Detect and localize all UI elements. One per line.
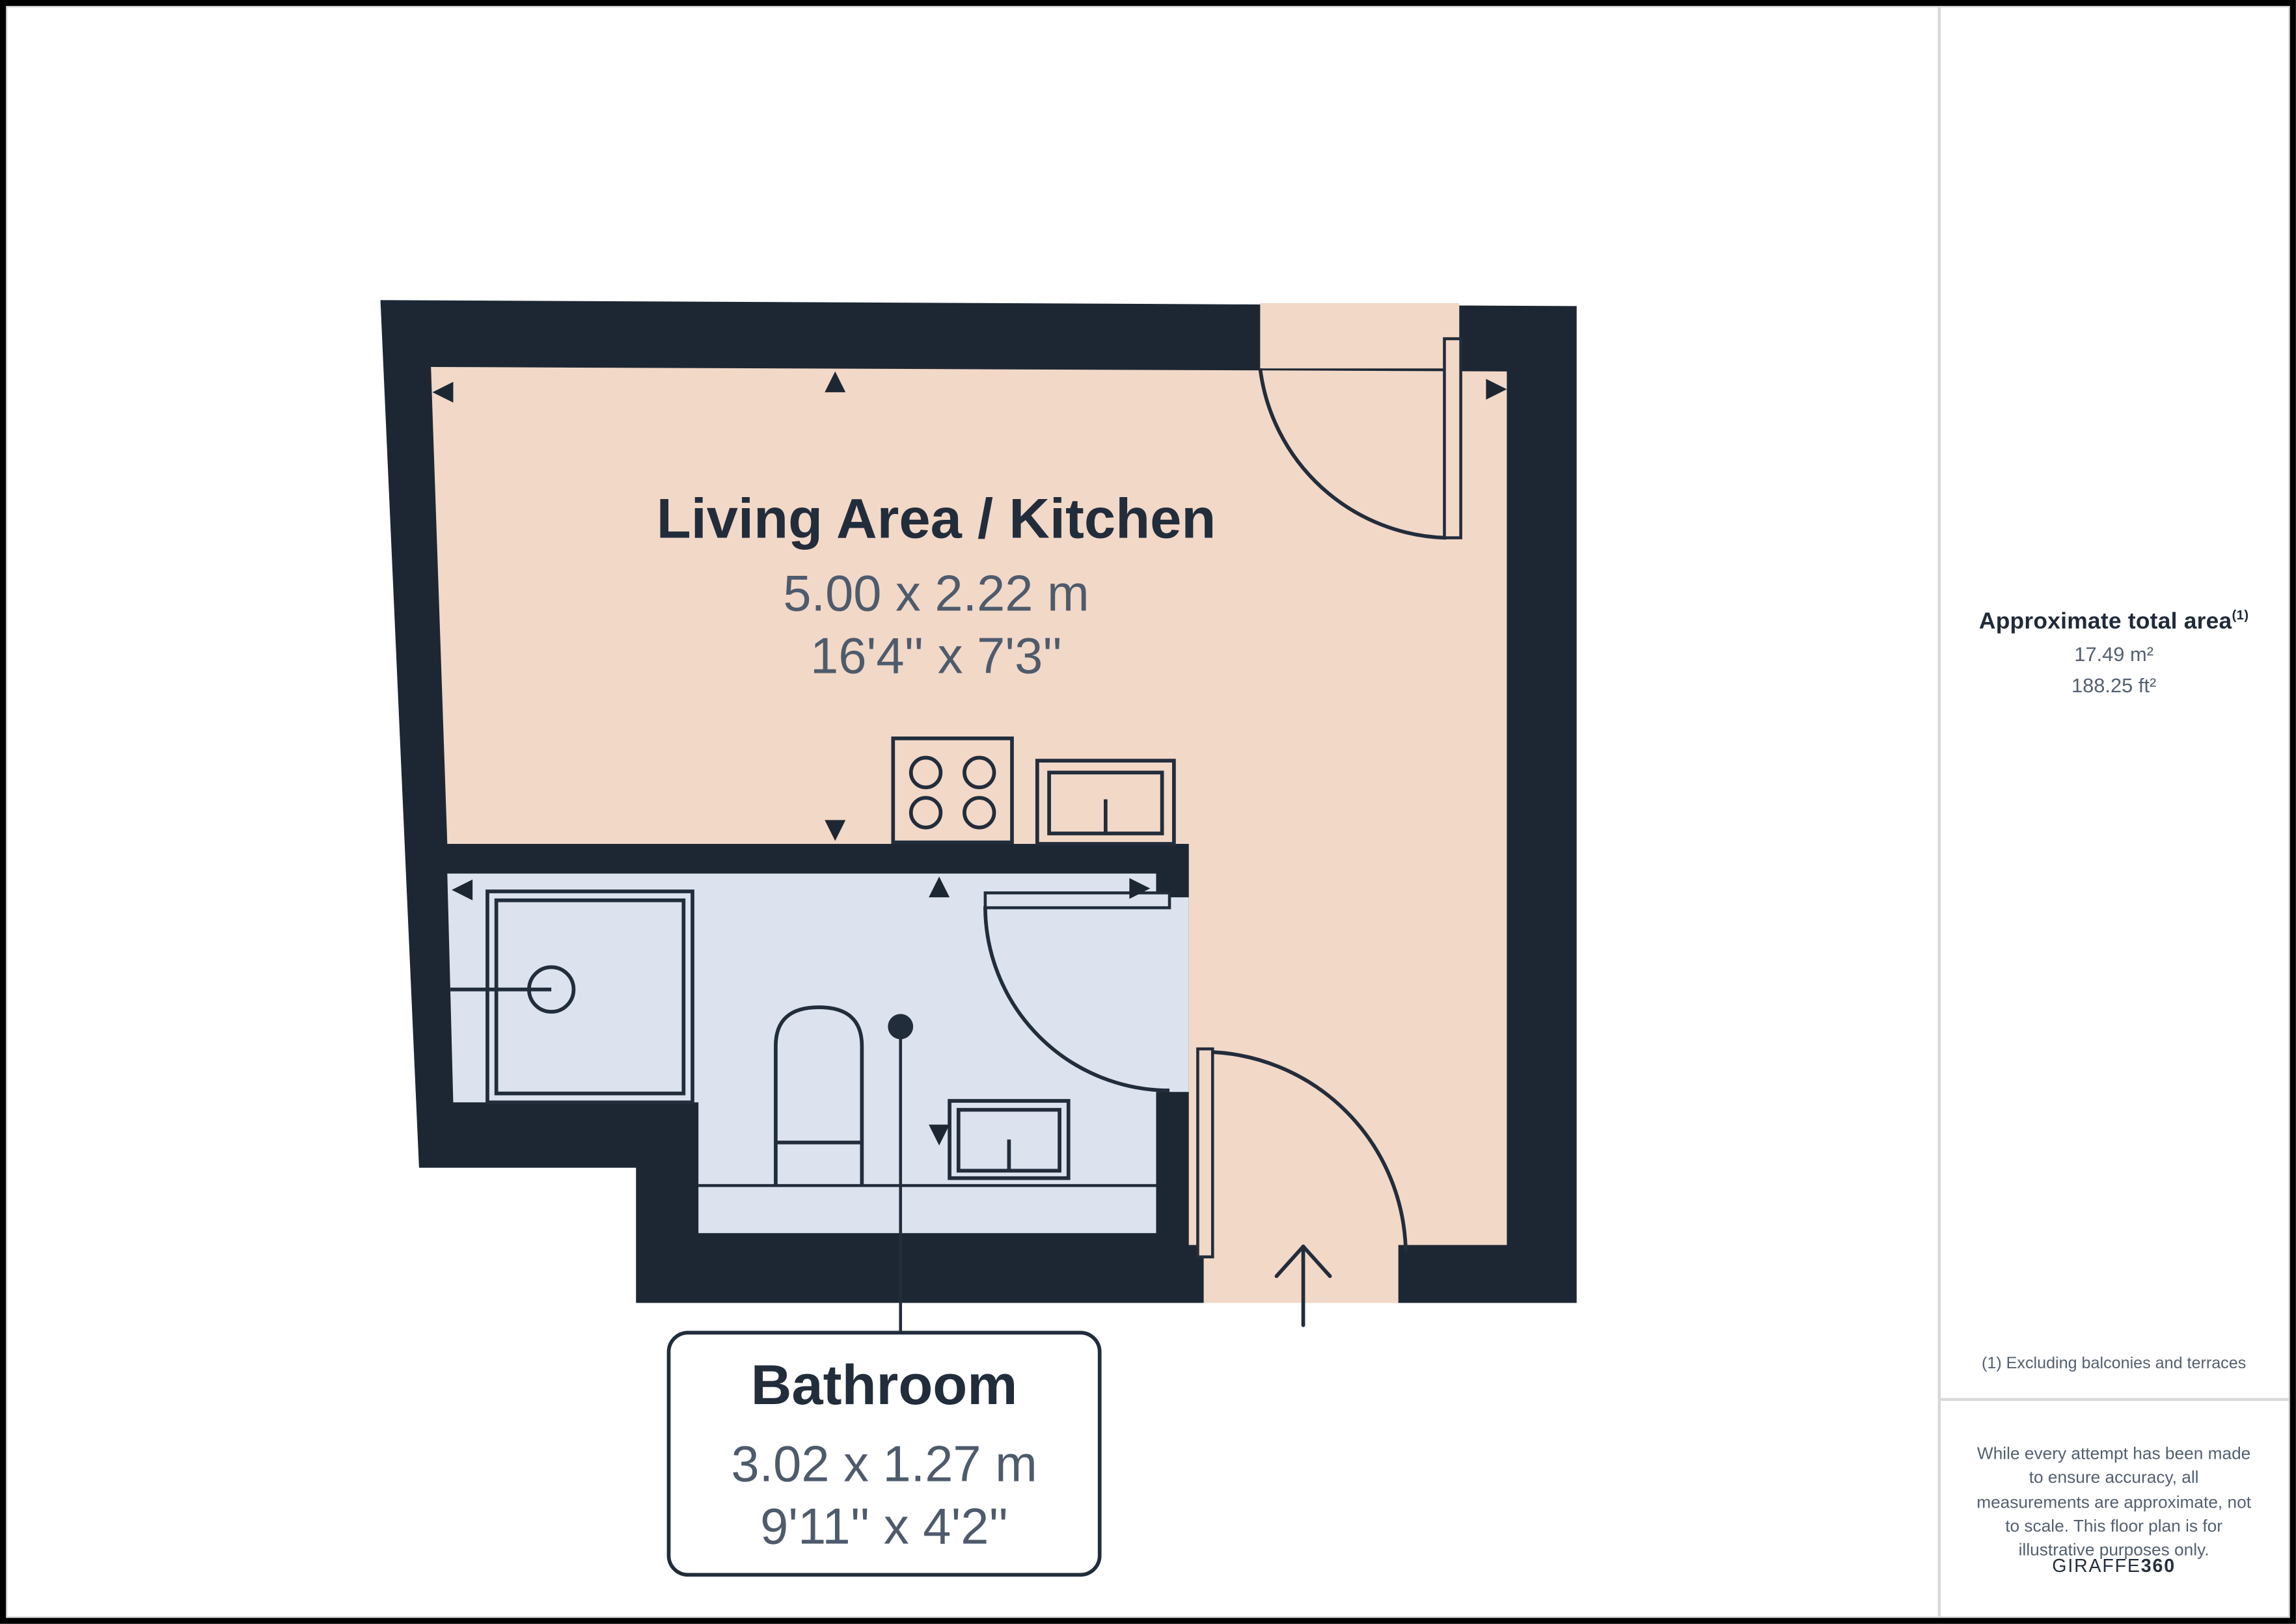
room-size-metric: 5.00 x 2.22 m (783, 565, 1089, 621)
room-name: Living Area / Kitchen (657, 487, 1216, 550)
disclaimer-text: While every attempt has been made to ens… (1971, 1442, 2258, 1563)
sidebar-divider (1938, 7, 1941, 1616)
area-footnote: (1) Excluding balconies and terraces (1938, 1355, 2290, 1372)
leader-dot (888, 1014, 913, 1039)
floorplan-page: Living Area / Kitchen 5.00 x 2.22 m 16'4… (0, 0, 2296, 1624)
room-size-imperial: 16'4'' x 7'3'' (810, 628, 1062, 684)
bottom-doorway-opening (1204, 1245, 1399, 1303)
room-size-imperial: 9'11'' x 4'2'' (760, 1498, 1008, 1554)
kitchen-sink-icon (1037, 761, 1174, 844)
room-name: Bathroom (751, 1353, 1018, 1416)
footnote-divider (1939, 1398, 2290, 1400)
total-area-ft2: 188.25 ft² (1938, 675, 2290, 697)
bathroom-floor (447, 874, 1188, 1234)
logo-text-bold: 360 (2141, 1556, 2176, 1577)
total-area-title-text: Approximate total area (1979, 610, 2232, 635)
top-doorway-opening (1260, 303, 1459, 368)
room-size-metric: 3.02 x 1.27 m (731, 1437, 1037, 1493)
washbasin-icon (950, 1101, 1069, 1178)
total-area-m2: 17.49 m² (1938, 643, 2290, 666)
footnote-marker: (1) (2232, 608, 2248, 623)
hob-icon (893, 738, 1012, 843)
logo-text-regular: GIRAFFE (2052, 1556, 2141, 1577)
total-area-title: Approximate total area(1) (1938, 608, 2290, 636)
giraffe360-logo: GIRAFFE360 (1938, 1556, 2290, 1577)
bathroom-callout: Bathroom 3.02 x 1.27 m 9'11'' x 4'2'' (669, 1333, 1100, 1575)
info-sidebar: Approximate total area(1) 17.49 m² 188.2… (1938, 7, 2290, 1616)
